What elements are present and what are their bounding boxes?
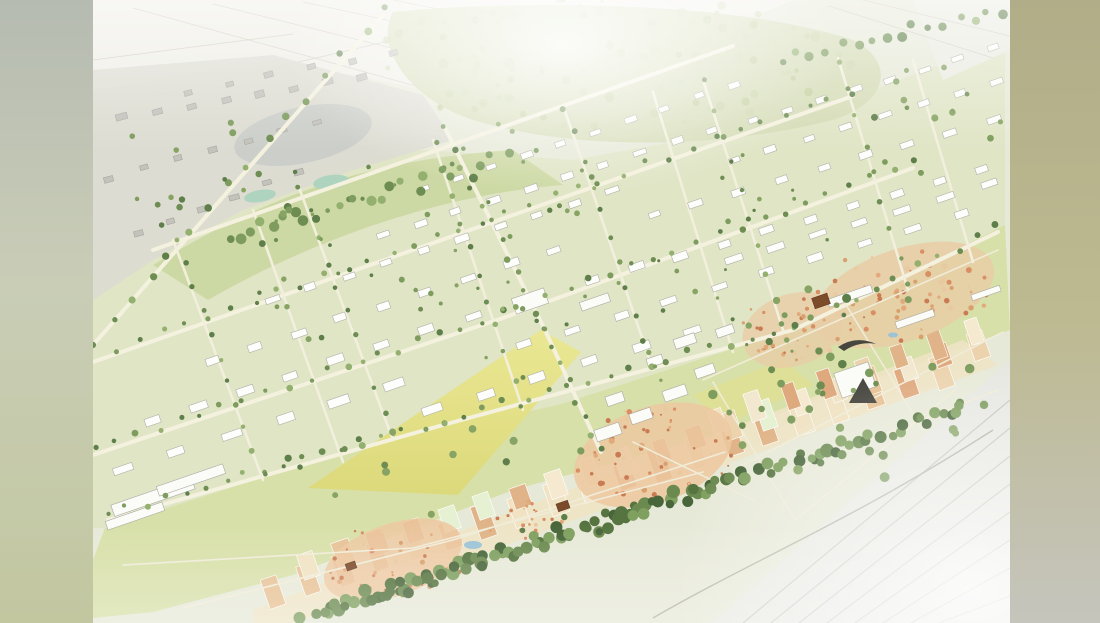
street-trees-item <box>122 503 126 507</box>
scatter-trees-item <box>905 296 912 303</box>
flower-speckles-item <box>816 290 821 295</box>
flower-speckles-item <box>942 287 947 292</box>
street-trees-item <box>138 337 143 342</box>
scatter-trees-item <box>241 188 246 193</box>
street-trees-item <box>489 218 494 223</box>
small-pond-park <box>888 333 898 338</box>
street-trees-item <box>269 222 279 232</box>
street-trees-item <box>228 305 234 311</box>
street-trees-item <box>501 349 505 353</box>
street-trees-item <box>325 365 330 370</box>
street-trees-item <box>255 301 259 305</box>
street-trees-item <box>871 169 876 174</box>
scatter-trees-item <box>159 222 165 228</box>
flower-speckles-item <box>930 304 933 307</box>
flower-speckles-item <box>901 305 906 310</box>
scatter-trees-item <box>486 200 490 204</box>
flower-speckles-item <box>622 456 626 460</box>
scatter-trees-item <box>507 234 512 239</box>
flower-speckles-item <box>593 451 596 454</box>
street-trees-item <box>392 251 396 255</box>
street-trees-item <box>586 381 591 386</box>
scatter-trees-item <box>328 243 332 247</box>
flower-speckles-item <box>854 267 857 270</box>
street-trees-item <box>263 388 267 392</box>
flower-speckles-item <box>797 312 801 316</box>
scatter-trees-item <box>547 208 552 213</box>
street-trees-item <box>629 261 633 265</box>
scatter-trees-item <box>577 447 584 454</box>
street-trees-item <box>336 202 343 209</box>
scatter-trees-item <box>815 347 822 354</box>
street-trees-item <box>219 358 223 362</box>
flower-speckles-item <box>833 279 838 284</box>
scatter-trees-item <box>325 208 330 213</box>
flower-speckles-item <box>496 516 500 520</box>
scatter-trees-item <box>804 285 812 293</box>
flower-speckles-item <box>805 327 807 329</box>
scatter-trees-item <box>565 322 569 326</box>
scatter-trees-item <box>503 458 510 465</box>
flower-speckles-item <box>614 463 617 466</box>
forest-band-trees-item <box>628 510 639 521</box>
forest-band-trees-item <box>688 484 698 494</box>
scatter-trees-item <box>752 209 755 212</box>
street-trees-item <box>326 263 331 268</box>
scatter-trees-item <box>222 177 227 182</box>
scatter-trees-item <box>826 353 835 362</box>
street-trees-item <box>185 491 189 495</box>
street-trees-item <box>526 398 531 403</box>
scatter-trees-item <box>280 210 287 217</box>
street-trees-item <box>609 374 613 378</box>
letterboxed-rendering <box>0 0 1100 623</box>
street-trees-item <box>684 347 690 353</box>
street-trees-item <box>740 188 744 192</box>
scatter-trees-item <box>418 307 423 312</box>
flower-speckles-item <box>970 291 973 294</box>
street-trees-item <box>457 222 462 227</box>
flower-speckles-item <box>669 426 671 428</box>
street-trees-item <box>203 486 208 491</box>
street-trees-item <box>112 439 117 444</box>
street-trees-item <box>372 385 376 389</box>
street-trees-item <box>549 345 554 350</box>
scatter-trees-item <box>724 268 727 271</box>
flower-speckles-item <box>876 273 881 278</box>
scatter-trees-item <box>790 350 793 353</box>
street-trees-item <box>243 165 249 171</box>
street-trees-item <box>456 229 461 234</box>
flower-speckles-item <box>688 483 690 485</box>
scatter-trees-item <box>342 446 348 452</box>
street-trees-item <box>846 182 851 187</box>
street-trees-item <box>569 287 573 291</box>
flower-speckles-item <box>648 471 651 474</box>
street-trees-item <box>233 402 239 408</box>
street-trees-item <box>375 350 380 355</box>
flower-speckles-item <box>667 429 670 432</box>
scatter-trees-item <box>168 195 174 201</box>
street-trees-item <box>957 248 963 254</box>
flower-speckles-item <box>642 428 645 431</box>
flower-speckles-item <box>797 340 799 342</box>
street-trees-item <box>480 321 484 325</box>
street-trees-item <box>112 317 117 322</box>
scatter-trees-item <box>617 281 621 285</box>
street-trees-item <box>310 379 314 383</box>
scatter-trees-item <box>449 451 456 458</box>
street-trees-item <box>312 215 320 223</box>
flower-speckles-item <box>663 462 667 466</box>
street-trees-item <box>366 196 376 206</box>
flower-speckles-item <box>937 295 940 298</box>
street-trees-item <box>321 270 327 276</box>
street-trees-item <box>163 493 169 499</box>
street-trees-item <box>150 273 157 280</box>
flower-speckles-item <box>525 505 528 508</box>
street-trees-item <box>572 400 578 406</box>
street-trees-item <box>480 204 485 209</box>
street-trees-item <box>106 512 110 516</box>
flower-speckles-item <box>941 278 946 283</box>
street-trees-item <box>492 322 498 328</box>
flower-speckles-item <box>660 465 664 469</box>
street-trees-item <box>886 226 891 231</box>
scatter-trees-item <box>565 208 570 213</box>
scatter-trees-item <box>777 380 785 388</box>
scatter-trees-item <box>731 317 735 321</box>
scatter-trees-item <box>746 322 752 328</box>
street-trees-item <box>807 314 813 320</box>
scatter-trees-item <box>336 271 340 275</box>
street-trees-item <box>226 479 230 483</box>
scatter-trees-item <box>306 336 312 342</box>
scatter-trees-item <box>382 468 390 476</box>
flower-speckles-item <box>598 480 604 486</box>
scatter-trees-item <box>454 249 458 253</box>
street-trees-item <box>437 329 443 335</box>
scatter-trees-item <box>646 350 651 355</box>
scatter-trees-item <box>557 203 562 208</box>
masterplan-aerial-rendering <box>93 0 1010 623</box>
street-trees-item <box>415 335 421 341</box>
scatter-trees-item <box>513 304 519 310</box>
street-trees-item <box>502 209 506 213</box>
street-trees-item <box>273 286 278 291</box>
scatter-trees-item <box>370 273 374 277</box>
street-trees-item <box>763 214 768 219</box>
scatter-trees-item <box>534 319 538 323</box>
street-trees-item <box>640 338 646 344</box>
scatter-trees-item <box>284 304 289 309</box>
scatter-trees-item <box>285 455 292 462</box>
street-trees-item <box>803 200 808 205</box>
flower-speckles-item <box>863 316 865 318</box>
flower-speckles-item <box>968 305 973 310</box>
street-trees-item <box>617 259 622 264</box>
scatter-trees-item <box>428 291 434 297</box>
street-trees-item <box>479 404 485 410</box>
street-trees-item <box>823 191 828 196</box>
scatter-trees-item <box>745 343 748 346</box>
street-trees-item <box>905 282 910 287</box>
street-trees-item <box>521 288 525 292</box>
street-trees-item <box>423 427 428 432</box>
street-trees-item <box>449 193 455 199</box>
flower-speckles-item <box>896 309 900 313</box>
scatter-trees-item <box>413 288 418 293</box>
street-trees-item <box>183 260 189 266</box>
street-trees-item <box>263 472 268 477</box>
street-trees-item <box>558 360 563 365</box>
flower-speckles-item <box>823 319 826 322</box>
flower-speckles-item <box>802 297 806 301</box>
street-trees-item <box>411 243 417 249</box>
street-trees-item <box>227 235 235 243</box>
flower-speckles-item <box>871 310 876 315</box>
flower-speckles-item <box>750 308 753 311</box>
street-trees-item <box>564 383 569 388</box>
flower-speckles-item <box>670 419 673 422</box>
scatter-trees-item <box>176 204 183 211</box>
scatter-trees-item <box>716 296 720 300</box>
scatter-trees-item <box>692 289 698 295</box>
street-trees-item <box>255 217 264 226</box>
street-trees-item <box>236 233 247 244</box>
flower-speckles-item <box>806 345 809 348</box>
street-trees-item <box>205 316 210 321</box>
scatter-trees-item <box>356 436 362 442</box>
flower-speckles-item <box>714 439 718 443</box>
flower-speckles-item <box>920 249 924 253</box>
street-trees-item <box>333 285 338 290</box>
flower-speckles-item <box>947 280 952 285</box>
forest-band-trees-item <box>601 508 610 517</box>
scatter-trees-item <box>285 206 292 213</box>
street-trees-item <box>622 285 627 290</box>
flower-speckles-item <box>895 315 900 320</box>
flower-speckles-item <box>755 326 758 329</box>
street-trees-item <box>547 387 552 392</box>
street-trees-item <box>516 269 522 275</box>
street-trees-item <box>877 199 883 205</box>
flower-speckles-item <box>783 351 786 354</box>
scatter-trees-item <box>708 390 717 399</box>
street-trees-item <box>132 430 139 437</box>
flower-speckles-item <box>827 348 832 353</box>
scatter-trees-item <box>332 492 338 498</box>
street-trees-item <box>182 321 186 325</box>
scatter-trees-item <box>583 294 587 298</box>
street-trees-item <box>501 237 506 242</box>
street-trees-item <box>364 259 369 264</box>
scatter-trees-item <box>469 425 477 433</box>
street-trees-item <box>792 322 799 329</box>
scatter-trees-item <box>561 514 567 520</box>
street-trees-item <box>477 274 482 279</box>
street-trees-item <box>129 296 136 303</box>
scatter-trees-item <box>275 304 280 309</box>
street-trees-item <box>353 332 358 337</box>
street-trees-item <box>249 448 255 454</box>
street-trees-item <box>914 260 921 267</box>
street-trees-item <box>533 311 539 317</box>
flower-speckles-item <box>624 410 626 412</box>
scatter-trees-item <box>179 196 185 202</box>
scatter-trees-item <box>428 511 435 518</box>
forest-band-trees-item <box>667 485 680 498</box>
scatter-trees-item <box>274 219 277 222</box>
street-trees-item <box>608 235 613 240</box>
flower-speckles-item <box>948 305 953 310</box>
street-trees-item <box>588 432 594 438</box>
scatter-trees-item <box>784 337 789 342</box>
street-trees-item <box>209 332 215 338</box>
scatter-trees-item <box>659 379 663 383</box>
flower-speckles-item <box>864 327 869 332</box>
street-trees-item <box>779 321 784 326</box>
scatter-trees-item <box>510 437 518 445</box>
flower-speckles-item <box>630 478 632 480</box>
street-trees-item <box>542 326 547 331</box>
street-trees-item <box>783 211 789 217</box>
flower-speckles-item <box>963 311 968 316</box>
scatter-trees-item <box>366 165 371 170</box>
street-trees-item <box>585 275 592 282</box>
street-trees-item <box>597 207 602 212</box>
street-trees-item <box>854 298 859 303</box>
flower-speckles-item <box>673 408 676 411</box>
flower-speckles-item <box>982 303 986 307</box>
street-trees-item <box>396 350 402 356</box>
scatter-trees-item <box>720 176 724 180</box>
scatter-trees-item <box>360 197 364 201</box>
scatter-trees-item <box>838 360 847 369</box>
flower-speckles-item <box>757 349 760 352</box>
street-trees-item <box>527 203 531 207</box>
scatter-trees-item <box>381 462 388 469</box>
flower-speckles-item <box>919 335 924 340</box>
street-trees-item <box>718 229 723 234</box>
flower-speckles-item <box>849 322 852 325</box>
scatter-trees-item <box>792 197 796 201</box>
street-trees-item <box>520 306 525 311</box>
street-trees-item <box>286 385 293 392</box>
scatter-trees-item <box>476 287 479 290</box>
street-trees-item <box>728 343 735 350</box>
street-trees-item <box>93 445 98 450</box>
street-trees-item <box>159 428 164 433</box>
flower-speckles-item <box>920 328 922 330</box>
street-trees-item <box>756 243 761 248</box>
street-trees-item <box>669 250 674 255</box>
flower-speckles-item <box>550 518 553 521</box>
flower-speckles-item <box>801 314 806 319</box>
flower-speckles-item <box>764 345 769 350</box>
street-trees-item <box>763 271 769 277</box>
scatter-trees-item <box>661 308 666 313</box>
street-trees-item <box>625 365 632 372</box>
flower-speckles-item <box>615 452 621 458</box>
flower-speckles-item <box>913 280 917 284</box>
scatter-trees-item <box>425 212 431 218</box>
flower-speckles-item <box>835 337 839 341</box>
scatter-trees-item <box>882 159 888 165</box>
flower-speckles-item <box>801 356 804 359</box>
flower-speckles-item <box>510 509 512 511</box>
street-trees-item <box>867 173 872 178</box>
flower-speckles-item <box>950 286 954 290</box>
street-trees-item <box>583 414 588 419</box>
street-trees-item <box>297 285 302 290</box>
flower-speckles-item <box>852 326 855 329</box>
flower-speckles-item <box>623 425 627 429</box>
street-trees-item <box>890 275 896 281</box>
scatter-trees-item <box>757 197 762 202</box>
scatter-trees-item <box>274 238 278 242</box>
street-trees-item <box>319 448 326 455</box>
street-trees-item <box>162 252 169 259</box>
flower-speckles-item <box>576 468 580 472</box>
scatter-trees-item <box>389 428 396 435</box>
flower-speckles-item <box>928 292 932 296</box>
street-trees-item <box>162 326 167 331</box>
forest-band-trees-item <box>682 496 693 507</box>
scatter-trees-item <box>393 183 396 186</box>
flower-speckles-item <box>531 518 534 521</box>
flower-speckles-item <box>871 256 874 259</box>
scatter-trees-item <box>297 464 303 470</box>
street-trees-item <box>772 332 776 336</box>
street-trees-item <box>347 267 352 272</box>
street-trees-item <box>740 226 746 232</box>
flower-speckles-item <box>530 502 533 505</box>
scatter-trees-item <box>918 170 924 176</box>
flower-speckles-item <box>663 406 668 411</box>
scatter-trees-item <box>657 259 660 262</box>
street-trees-item <box>225 378 229 382</box>
street-trees-item <box>504 256 511 263</box>
street-trees-item <box>114 349 119 354</box>
street-trees-item <box>468 244 474 250</box>
flower-speckles-item <box>617 449 619 451</box>
flower-speckles-item <box>625 418 628 421</box>
street-trees-item <box>379 434 383 438</box>
street-trees-item <box>542 293 547 298</box>
street-trees-item <box>189 284 194 289</box>
street-trees-item <box>499 397 505 403</box>
street-trees-item <box>693 239 698 244</box>
flower-speckles-item <box>533 509 535 511</box>
flower-speckles-item <box>624 475 629 480</box>
street-trees-item <box>396 178 403 185</box>
street-trees-item <box>383 410 389 416</box>
forest-band-trees-item <box>652 495 664 507</box>
street-trees-item <box>935 254 939 258</box>
street-trees-item <box>282 464 286 468</box>
blur-band-right <box>1010 0 1100 623</box>
scatter-trees-item <box>842 294 851 303</box>
flower-speckles-item <box>967 285 969 287</box>
scatter-trees-item <box>521 375 526 380</box>
scatter-trees-item <box>293 170 298 175</box>
scatter-trees-item <box>825 238 829 242</box>
scatter-trees-item <box>399 277 405 283</box>
street-trees-item <box>892 167 898 173</box>
street-trees-item <box>240 470 245 475</box>
scatter-trees-item <box>257 291 261 295</box>
